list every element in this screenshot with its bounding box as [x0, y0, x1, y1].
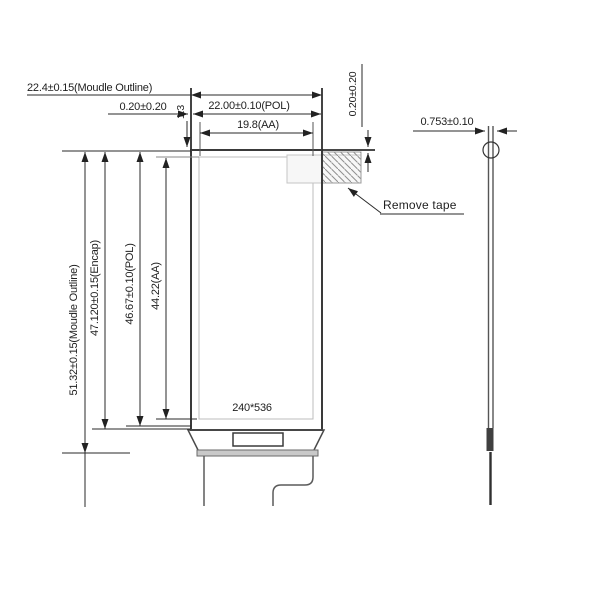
dim-offset-top-label: 1.3	[175, 105, 187, 119]
dim-module-height: 51.32±0.15(Moudle Outline)	[68, 152, 85, 507]
tape-hatched-area	[322, 152, 361, 183]
dim-thickness: 0.753±0.10	[413, 116, 517, 131]
dim-module-height-label: 51.32±0.15(Moudle Outline)	[68, 264, 80, 395]
dim-aa-height-label: 44.22(AA)	[150, 262, 162, 310]
resolution-label: 240*536	[232, 402, 272, 414]
fpc-bond-strip	[197, 450, 318, 456]
remove-tape-label: Remove tape	[383, 198, 457, 212]
driver-ic	[233, 433, 283, 446]
dim-aa-width-label: 19.8(AA)	[237, 119, 279, 131]
panel-outline	[191, 150, 322, 430]
front-view: 240*536	[188, 150, 361, 506]
detail-circle	[483, 142, 499, 158]
dim-gap-left-label: 0.20±0.20	[119, 101, 166, 113]
dim-offset-top: 1.3	[175, 105, 187, 147]
dim-module-width-label: 22.4±0.15(Moudle Outline)	[27, 82, 152, 94]
active-area	[199, 157, 313, 419]
dim-gap-right-label: 0.20±0.20	[347, 71, 359, 116]
dim-pol-width-label: 22.00±0.10(POL)	[208, 100, 289, 112]
dim-encap-height-label: 47.120±0.15(Encap)	[89, 240, 101, 336]
technical-drawing: 240*536 22.4±0.15(Moudle Outline) 22.00±…	[0, 0, 600, 600]
drawing-canvas: 240*536 22.4±0.15(Moudle Outline) 22.00±…	[0, 0, 600, 600]
dim-pol-width: 22.00±0.10(POL)	[193, 100, 321, 114]
side-fpc-bond	[487, 428, 494, 451]
side-view	[483, 126, 499, 505]
dim-pol-height-label: 46.67±0.10(POL)	[124, 243, 136, 324]
dim-encap-height: 47.120±0.15(Encap)	[89, 152, 105, 429]
remove-tape-note: Remove tape	[348, 188, 464, 214]
fpc-right-edge	[273, 456, 313, 506]
dim-thickness-label: 0.753±0.10	[421, 116, 474, 128]
dim-module-width: 22.4±0.15(Moudle Outline)	[27, 82, 322, 95]
dim-pol-height: 46.67±0.10(POL)	[124, 152, 140, 426]
dim-aa-height: 44.22(AA)	[150, 158, 166, 419]
